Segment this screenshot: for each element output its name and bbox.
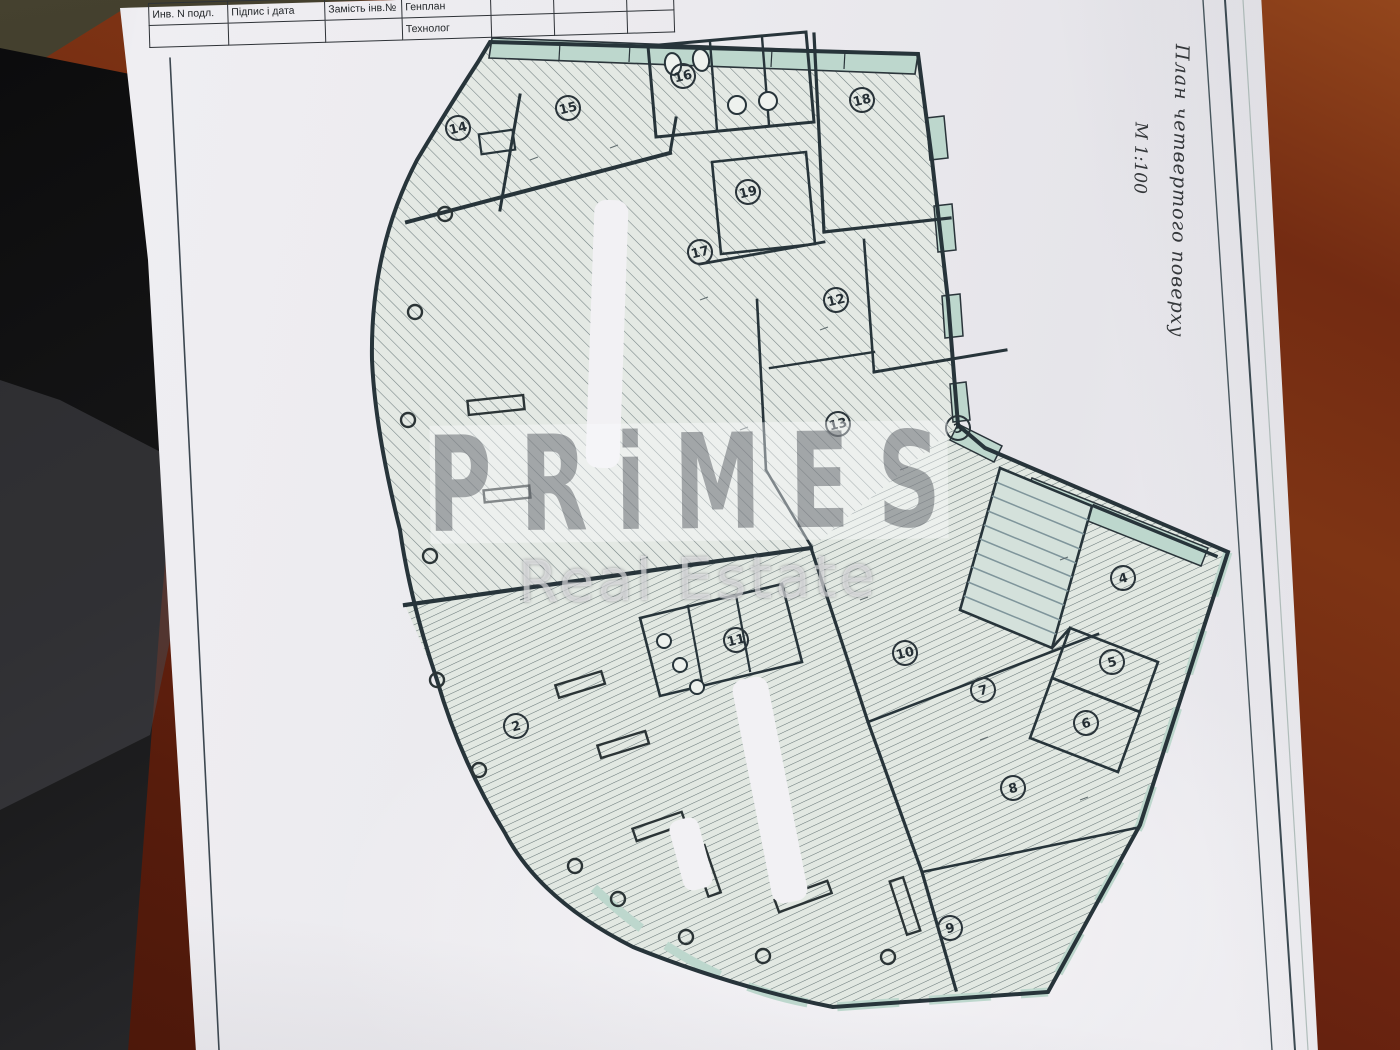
photo-of-floorplan: { "title_block": { "cells": ["Инв. N под… xyxy=(0,0,1400,1050)
watermark-band: PRiMES xyxy=(429,420,948,543)
watermark-brand: PRiMES xyxy=(408,402,969,562)
watermark-subtitle: Real Estate xyxy=(517,542,878,616)
plan-title-annotation: План четвертого поверху xyxy=(1167,44,1193,264)
scale-annotation: М 1:100 xyxy=(1129,121,1150,195)
